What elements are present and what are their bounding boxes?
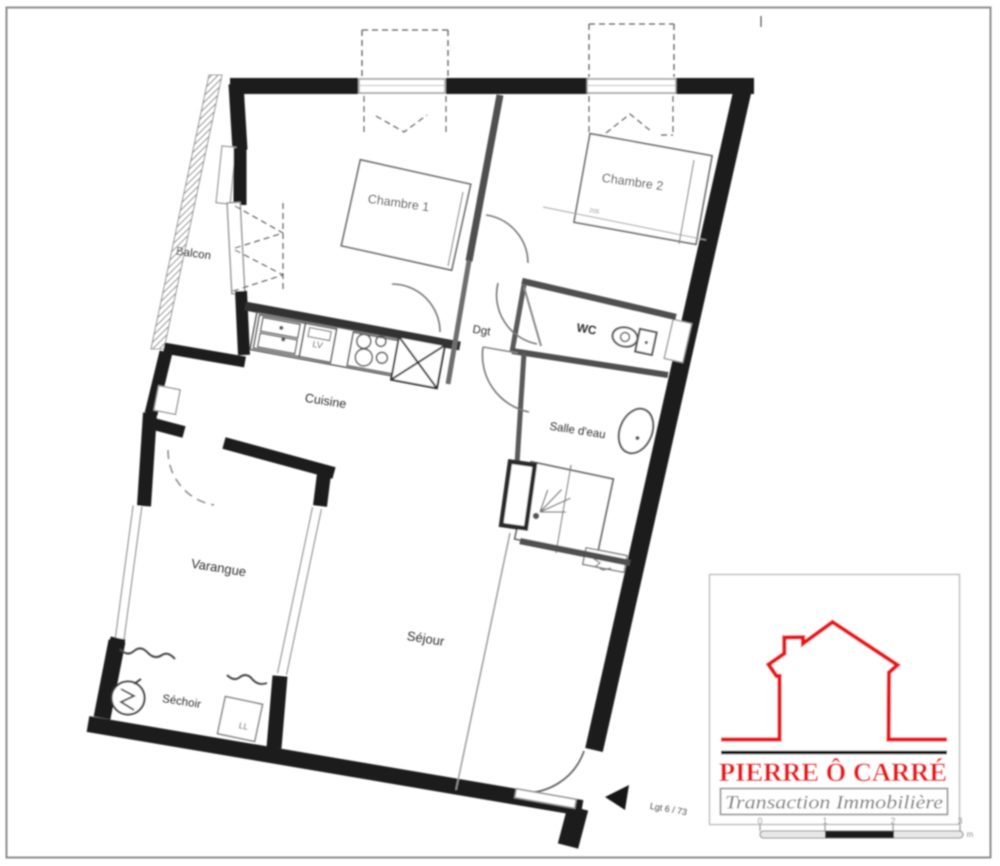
- svg-text:PIERRE Ô CARRÉ: PIERRE Ô CARRÉ: [719, 758, 947, 787]
- svg-text:Salle d'eau: Salle d'eau: [549, 421, 607, 442]
- svg-text:0: 0: [757, 816, 762, 826]
- svg-text:m: m: [967, 830, 974, 839]
- svg-text:Séchoir: Séchoir: [161, 693, 202, 711]
- svg-text:Dgt: Dgt: [472, 324, 492, 339]
- svg-text:1: 1: [822, 816, 827, 826]
- svg-text:WC: WC: [576, 321, 598, 338]
- svg-text:Séjour: Séjour: [406, 628, 446, 649]
- svg-text:2: 2: [890, 816, 895, 826]
- svg-text:3: 3: [957, 816, 962, 826]
- svg-text:Lgt 6 / 73: Lgt 6 / 73: [649, 801, 688, 817]
- svg-text:LV: LV: [312, 339, 324, 351]
- svg-text:Cuisine: Cuisine: [304, 391, 347, 411]
- svg-text:Varangue: Varangue: [190, 556, 247, 579]
- svg-text:Transaction Immobilière: Transaction Immobilière: [725, 793, 943, 814]
